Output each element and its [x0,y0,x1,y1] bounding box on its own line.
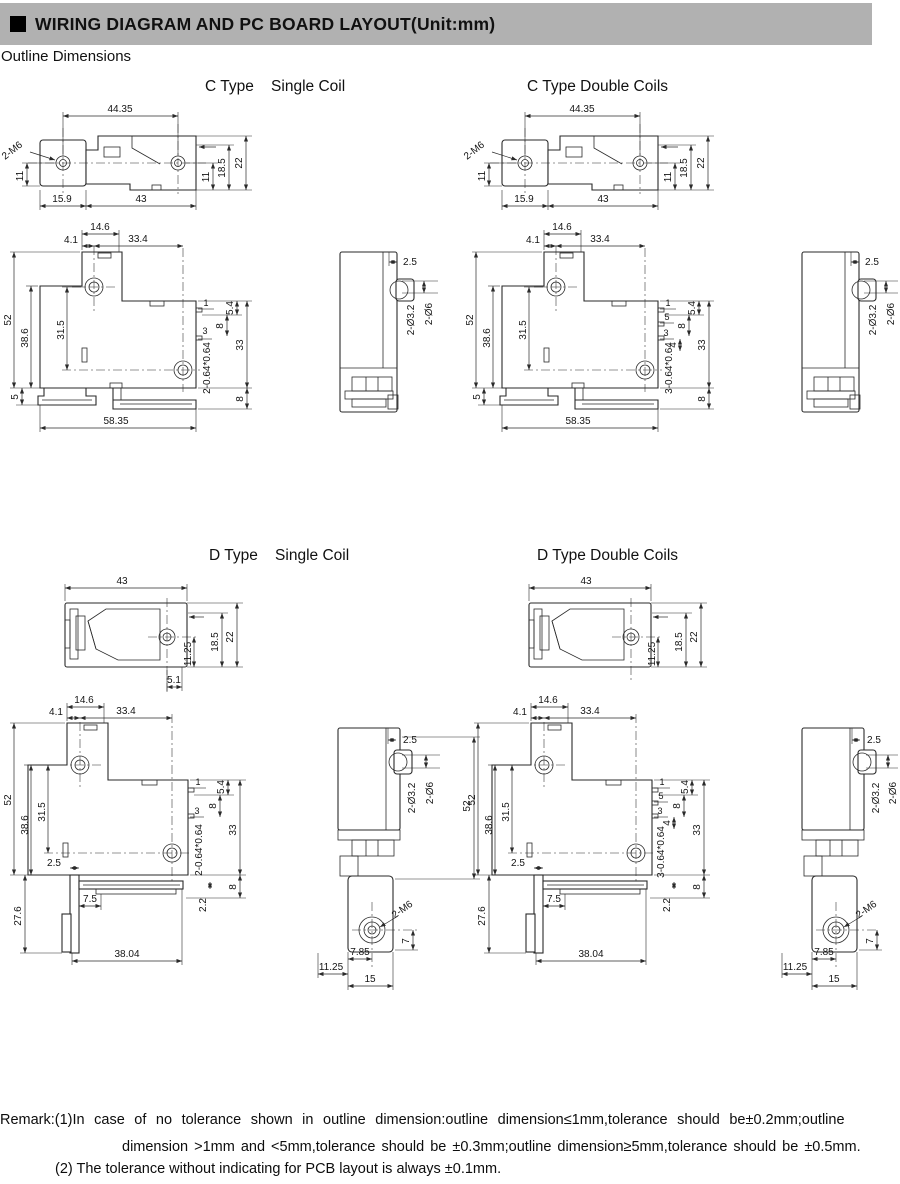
dim-label: 2.2 [198,898,209,912]
dim-label: 2-Ø3.2 [871,782,882,813]
dim-label: 27.6 [477,906,488,926]
dim-label: 5 [664,312,669,322]
remark-line-2: dimension >1mm and <5mm,tolerance should… [122,1139,861,1155]
dim-label: 38.6 [482,328,493,348]
c-double-side-view: 2.5 2-Ø3.2 2-Ø6 [802,252,898,412]
dim-label: 4.1 [64,235,78,246]
outline-dimensions-canvas: 44.35 2-M6 11 15.9 43 11 18.5 22 [0,0,900,1105]
dim-label: 5.4 [680,780,691,794]
dim-label: 1 [665,298,670,308]
dim-label: 5.4 [687,301,698,315]
dim-label: 2.5 [403,735,417,746]
dim-label: 11 [201,171,212,182]
dim-label: 43 [597,194,609,205]
dim-label: 38.6 [20,328,31,348]
dim-label: 22 [689,631,700,643]
dim-label: 2.5 [511,858,525,869]
dim-label: 3 [202,326,207,336]
dim-label: 11 [663,171,674,182]
dim-label: 2-Ø6 [424,302,435,325]
datasheet-page: { "colors": {"header_bar": "#b1b1b1", "l… [0,0,900,1184]
dim-label: 2.2 [662,898,673,912]
remark-line-3: (2) The tolerance without indicating for… [55,1161,501,1177]
dim-label: 44.35 [569,104,594,115]
dim-label: 2-M6 [0,139,25,162]
dim-label: 7.85 [814,947,834,958]
dim-label: 31.5 [37,802,48,822]
dim-label: 52 [3,794,14,806]
dim-label: 2-Ø3.2 [868,304,879,335]
dim-label: 31.5 [56,320,67,340]
dim-label: 2.5 [403,257,417,268]
dim-label: 38.6 [20,815,31,835]
dim-label: 18.5 [679,158,690,178]
remark-line-1: Remark:(1)In case of no tolerance shown … [0,1112,900,1128]
dim-label: 11.25 [319,962,344,973]
dim-label: 5.4 [216,780,227,794]
dim-label: 2-M6 [462,139,487,162]
dim-label: 3 [657,806,662,816]
d-single-side-view: 2-M6 2.5 2-Ø3.2 2-Ø6 52 7 7.85 11.25 15 [318,728,480,990]
dim-label: 3 [663,328,668,338]
dim-label: 44.35 [107,104,132,115]
dim-label: 1 [659,777,664,787]
dim-label: 2-M6 [390,899,415,921]
dim-label: 15.9 [52,194,72,205]
dim-label: 38.04 [578,949,603,960]
dim-label: 7 [401,938,412,944]
dim-label: 8 [235,396,246,402]
dim-label: 33 [692,824,703,836]
dim-label: 3-0.64*0.64 [656,826,667,878]
dim-label: 14.6 [538,695,558,706]
c-double-top-view: 44.35 2-M6 11 15.9 43 11 18.5 22 [462,104,714,210]
dim-label: 11 [477,170,488,181]
dim-label: 8 [697,396,708,402]
dim-label: 14.6 [90,222,110,233]
c-single-front-view: 14.6 4.1 33.4 52 38.6 31.5 1 5.4 8 3 33 … [3,222,252,432]
dim-label: 22 [696,157,707,169]
dim-label: 52 [3,314,14,326]
dim-label: 4 [662,820,673,826]
dim-label: 2-Ø3.2 [407,782,418,813]
dim-label: 33 [235,339,246,351]
dim-label: 52 [467,794,478,806]
dim-label: 2.5 [47,858,61,869]
dim-label: 43 [116,576,128,587]
dim-label: 22 [234,157,245,169]
dim-label: 2-M6 [854,899,879,921]
dim-label: 31.5 [501,802,512,822]
c-single-side-view: 2.5 2-Ø3.2 2-Ø6 [340,252,438,412]
dim-label: 33.4 [590,234,610,245]
dim-label: 2-Ø6 [886,302,897,325]
dim-label: 11.25 [183,641,194,666]
dim-label: 2-0.64*0.64 [194,824,205,876]
d-double-side-view: 2-M6 2.5 2-Ø3.2 2-Ø6 7 7.85 11.25 15 [782,728,899,990]
dim-label: 15.9 [514,194,534,205]
dim-label: 22 [225,631,236,643]
c-single-top-view: 44.35 2-M6 11 15.9 43 11 18.5 22 [0,104,252,210]
dim-label: 3-0.64*0.64 [664,342,675,394]
dim-label: 2-0.64*0.64 [202,342,213,394]
dim-label: 33.4 [128,234,148,245]
dim-label: 1 [203,298,208,308]
dim-label: 43 [580,576,592,587]
dim-label: 8 [215,323,226,329]
dim-label: 3 [194,806,199,816]
dim-label: 58.35 [565,416,590,427]
dim-label: 4.1 [513,707,527,718]
dim-label: 8 [672,803,683,809]
dim-label: 2.5 [865,257,879,268]
d-single-front-view: 14.6 4.1 33.4 52 38.6 31.5 1 5.4 8 3 33 … [3,695,246,965]
dim-label: 7.5 [547,894,561,905]
dim-label: 11.25 [647,641,658,666]
dim-label: 33 [228,824,239,836]
dim-label: 8 [228,884,239,890]
dim-label: 11 [15,170,26,181]
dim-label: 5 [10,394,21,400]
dim-label: 33.4 [116,706,136,717]
dim-label: 2.5 [867,735,881,746]
dim-label: 5 [658,791,663,801]
dim-label: 14.6 [552,222,572,233]
dim-label: 27.6 [13,906,24,926]
dim-label: 15 [364,974,376,985]
dim-label: 2-Ø6 [425,781,436,804]
dim-label: 7.5 [83,894,97,905]
dim-label: 4.1 [49,707,63,718]
dim-label: 1 [195,777,200,787]
dim-label: 8 [677,323,688,329]
c-double-front-view: 14.6 4.1 33.4 52 38.6 31.5 1 5 5.4 8 3 4… [465,222,714,432]
d-double-top-view: 43 11.25 18.5 22 [529,576,707,680]
dim-label: 14.6 [74,695,94,706]
dim-label: 8 [208,803,219,809]
dim-label: 5.4 [225,301,236,315]
dim-label: 5.1 [167,675,181,686]
dim-label: 4.1 [526,235,540,246]
dim-label: 18.5 [210,632,221,652]
dim-label: 38.04 [114,949,139,960]
dim-label: 15 [828,974,840,985]
d-double-front-view: 14.6 4.1 33.4 52 38.6 31.5 1 5 5.4 8 3 4… [467,695,710,965]
dim-label: 52 [465,314,476,326]
dim-label: 2-Ø6 [888,781,899,804]
dim-label: 18.5 [217,158,228,178]
dim-label: 7 [865,938,876,944]
dim-label: 8 [692,884,703,890]
dim-label: 2-Ø3.2 [406,304,417,335]
dim-label: 7.85 [350,947,370,958]
dim-label: 38.6 [484,815,495,835]
dim-label: 33 [697,339,708,351]
dim-label: 11.25 [783,962,808,973]
dim-label: 5 [472,394,483,400]
dim-label: 43 [135,194,147,205]
d-single-top-view: 43 11.25 18.5 22 5.1 [65,576,243,692]
dim-label: 31.5 [518,320,529,340]
dim-label: 18.5 [674,632,685,652]
dim-label: 58.35 [103,416,128,427]
dim-label: 33.4 [580,706,600,717]
